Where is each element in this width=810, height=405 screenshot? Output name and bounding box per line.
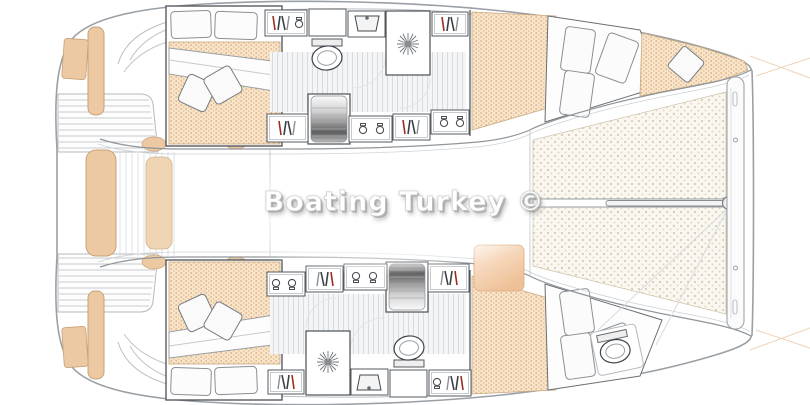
bow-toilet (590, 323, 644, 376)
forward-crossbeam (727, 77, 744, 329)
watermark-text: Boating Turkey © (264, 187, 545, 218)
cockpit-bench (86, 150, 116, 256)
catamaran-floor-plan: Boating Turkey © (0, 0, 810, 405)
cockpit-table-pad (146, 157, 172, 249)
port-mid-section (265, 9, 469, 144)
starboard-mid-section (267, 262, 471, 397)
foredeck-seat-pad (474, 245, 524, 291)
bow-guide-lines (750, 56, 810, 350)
